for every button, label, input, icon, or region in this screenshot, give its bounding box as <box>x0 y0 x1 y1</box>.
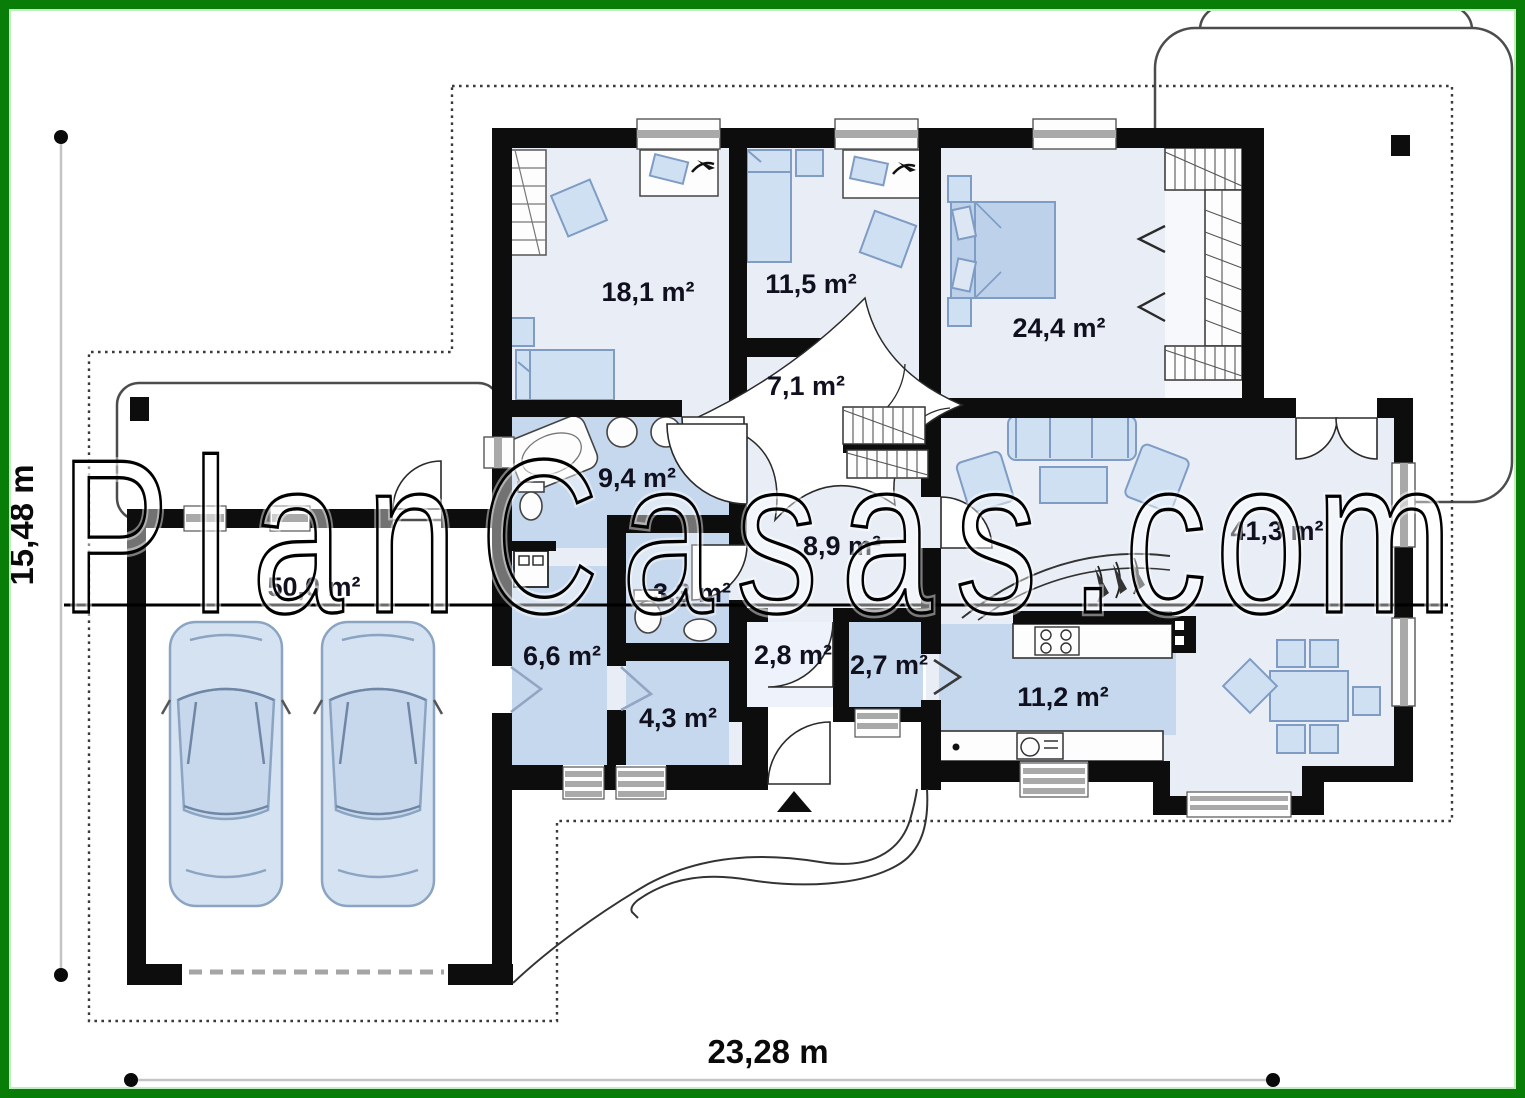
svg-text:7,1 m²: 7,1 m² <box>767 371 845 401</box>
svg-text:11,5 m²: 11,5 m² <box>765 269 857 299</box>
svg-text:23,28 m: 23,28 m <box>707 1033 828 1070</box>
svg-text:24,4 m²: 24,4 m² <box>1012 313 1105 343</box>
svg-text:4,3 m²: 4,3 m² <box>639 703 717 733</box>
svg-text:18,1 m²: 18,1 m² <box>601 277 694 307</box>
svg-text:.com: .com <box>1070 415 1460 659</box>
svg-text:11,2 m²: 11,2 m² <box>1017 682 1109 712</box>
svg-text:PlanCasas: PlanCasas <box>60 415 1058 659</box>
